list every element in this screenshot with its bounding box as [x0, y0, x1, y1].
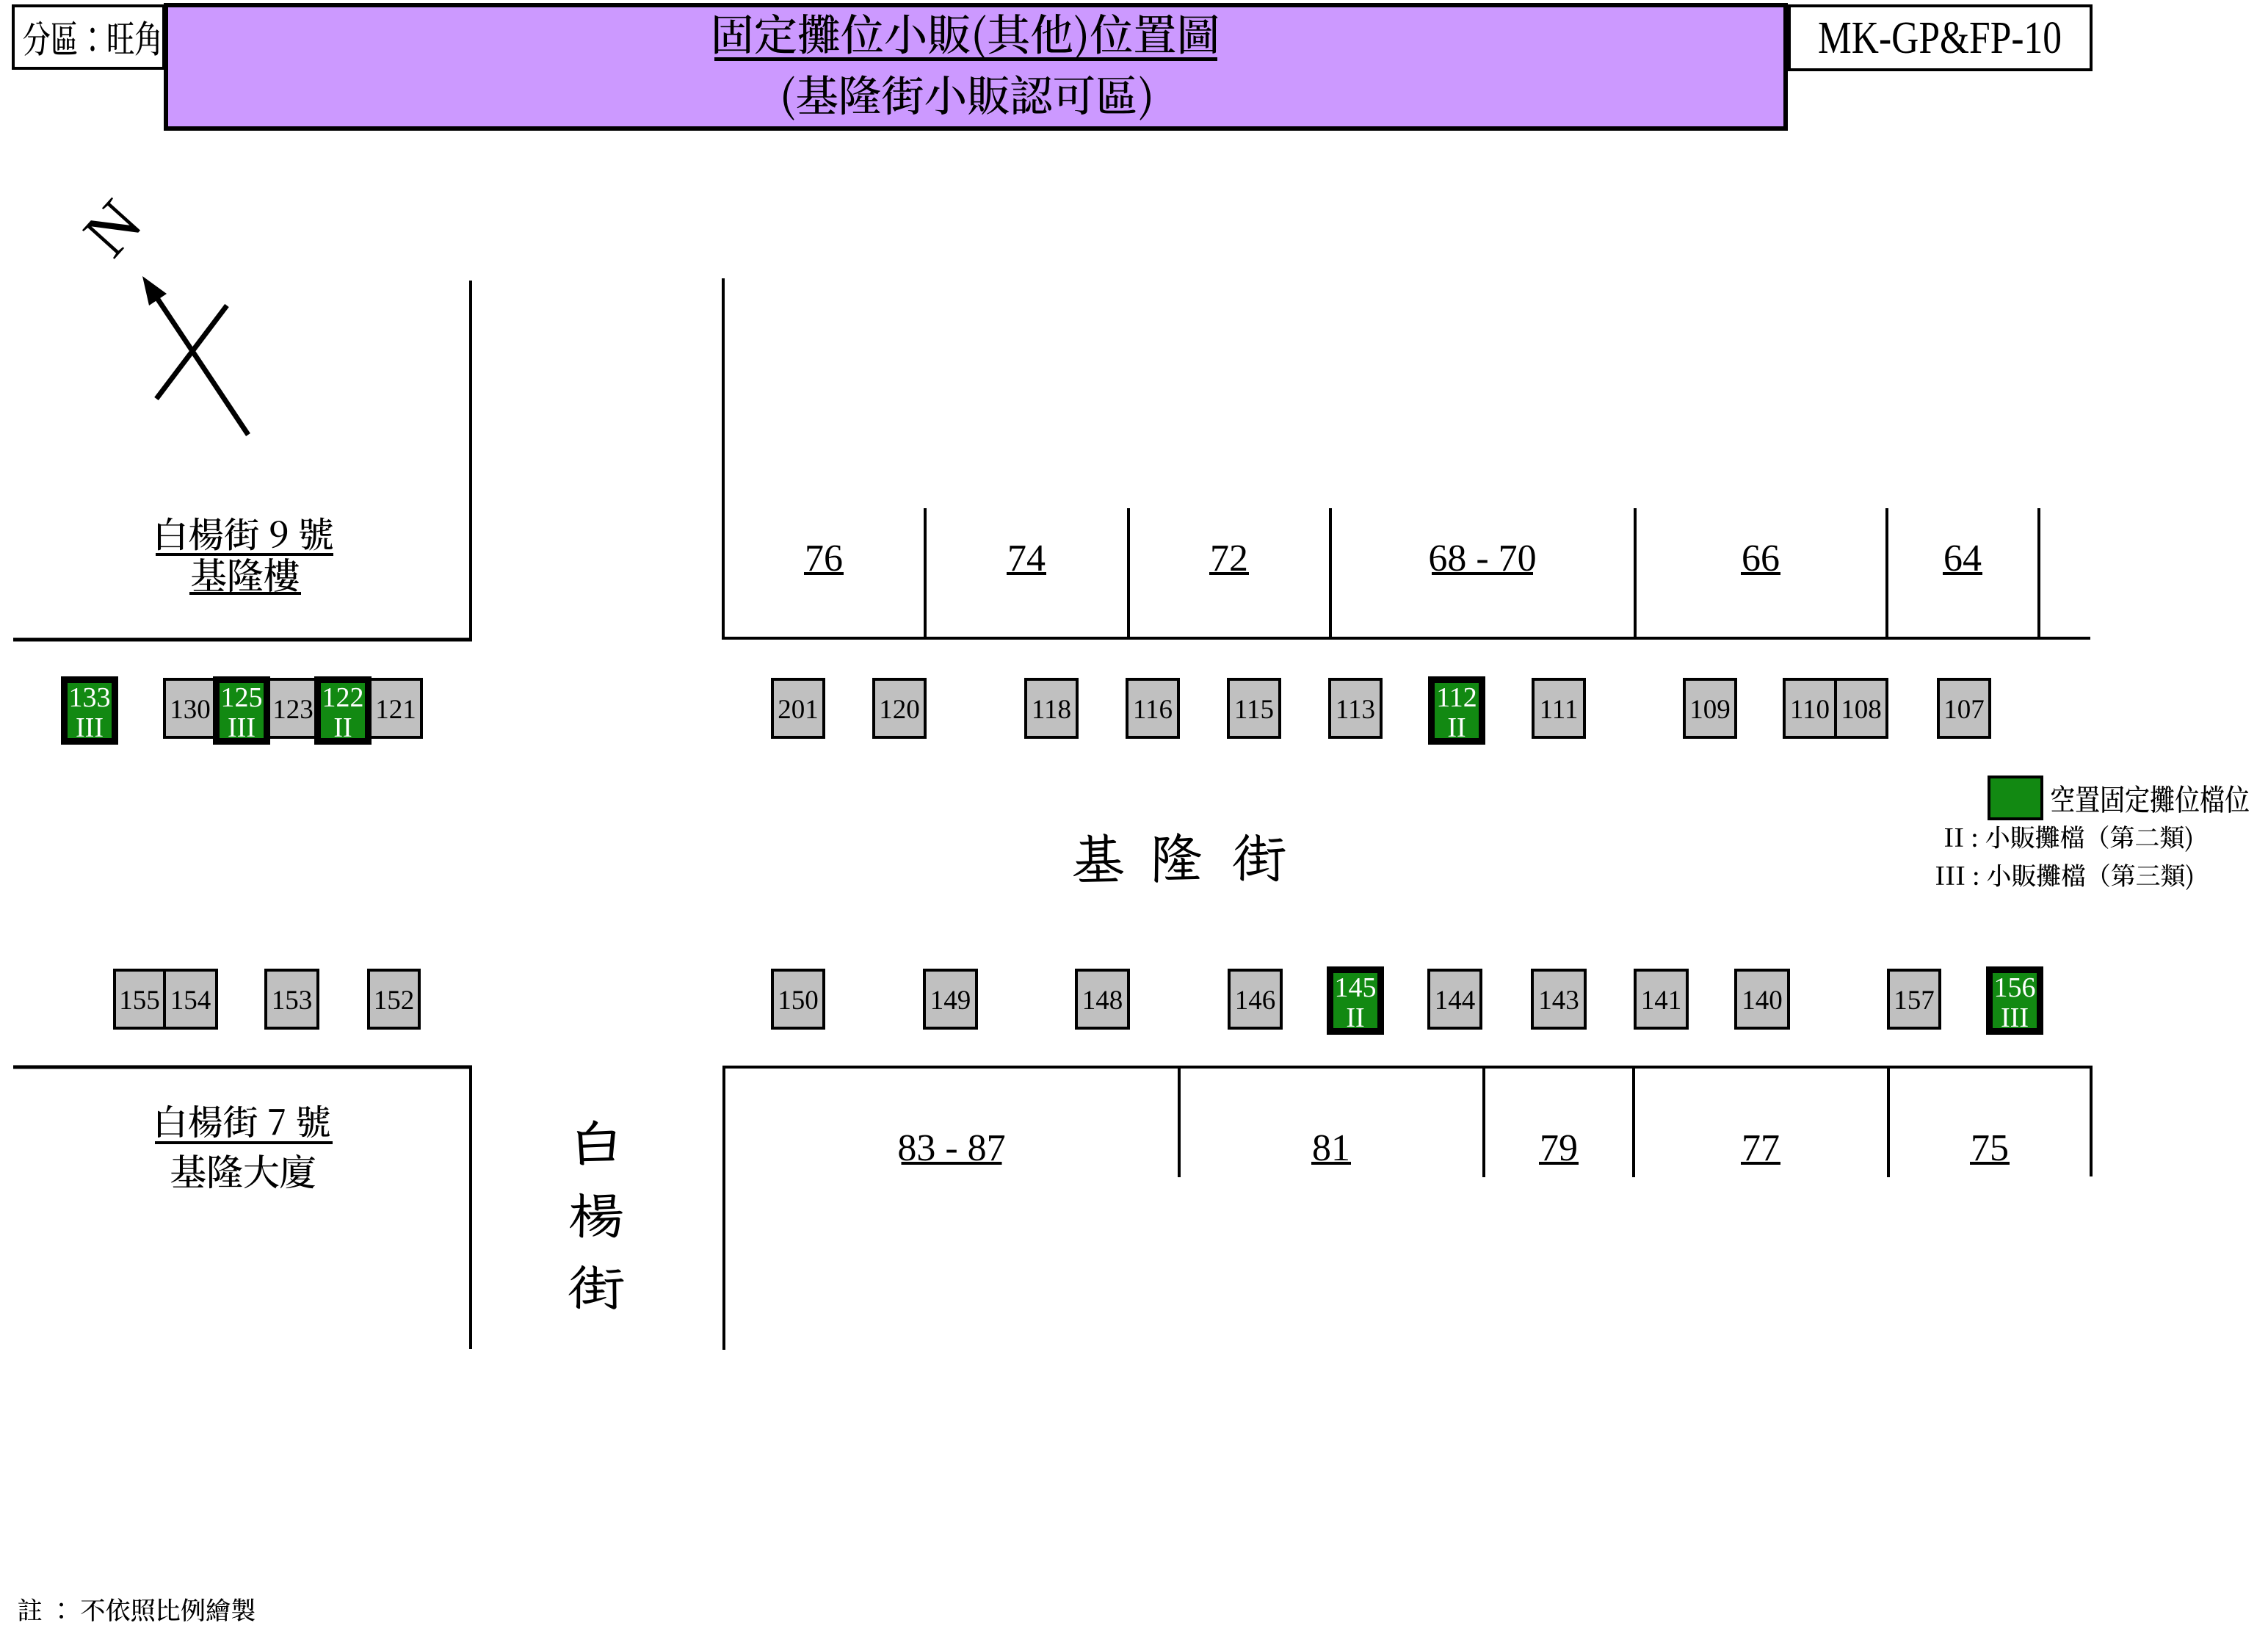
svg-text:144: 144: [1435, 986, 1476, 1016]
svg-text:116: 116: [1133, 695, 1173, 725]
svg-text:125: 125: [221, 682, 263, 713]
svg-text:107: 107: [1943, 695, 1985, 725]
svg-text:123: 123: [272, 695, 314, 725]
svg-text:133: 133: [69, 682, 111, 713]
svg-text:149: 149: [930, 986, 971, 1016]
svg-text:201: 201: [778, 695, 819, 725]
svg-text:II: II: [333, 712, 352, 743]
svg-text:152: 152: [374, 986, 415, 1016]
svg-text:146: 146: [1235, 986, 1276, 1016]
svg-text:113: 113: [1336, 695, 1375, 725]
svg-text:148: 148: [1082, 986, 1123, 1016]
svg-text:118: 118: [1032, 695, 1071, 725]
svg-text:III: III: [2001, 1002, 2029, 1033]
svg-text:157: 157: [1894, 986, 1935, 1016]
svg-text:140: 140: [1742, 986, 1783, 1016]
svg-text:II: II: [1346, 1002, 1364, 1033]
svg-text:155: 155: [119, 986, 160, 1016]
svg-text:110: 110: [1790, 695, 1830, 725]
svg-text:112: 112: [1436, 682, 1477, 713]
svg-text:111: 111: [1540, 695, 1579, 725]
svg-text:154: 154: [170, 986, 211, 1016]
svg-text:143: 143: [1538, 986, 1579, 1016]
svg-text:150: 150: [778, 986, 819, 1016]
svg-text:156: 156: [1994, 972, 2036, 1003]
svg-text:120: 120: [879, 695, 920, 725]
svg-text:108: 108: [1841, 695, 1882, 725]
svg-text:121: 121: [375, 695, 416, 725]
svg-text:115: 115: [1234, 695, 1274, 725]
svg-text:III: III: [76, 712, 104, 743]
svg-text:145: 145: [1335, 972, 1377, 1003]
svg-text:II: II: [1447, 712, 1465, 743]
svg-text:141: 141: [1641, 986, 1682, 1016]
svg-text:153: 153: [272, 986, 313, 1016]
svg-text:MK-GP&FP-10: MK-GP&FP-10: [1818, 13, 2062, 63]
svg-text:130: 130: [170, 695, 211, 725]
svg-text:109: 109: [1689, 695, 1731, 725]
svg-text:122: 122: [322, 682, 364, 713]
svg-text:III: III: [228, 712, 256, 743]
